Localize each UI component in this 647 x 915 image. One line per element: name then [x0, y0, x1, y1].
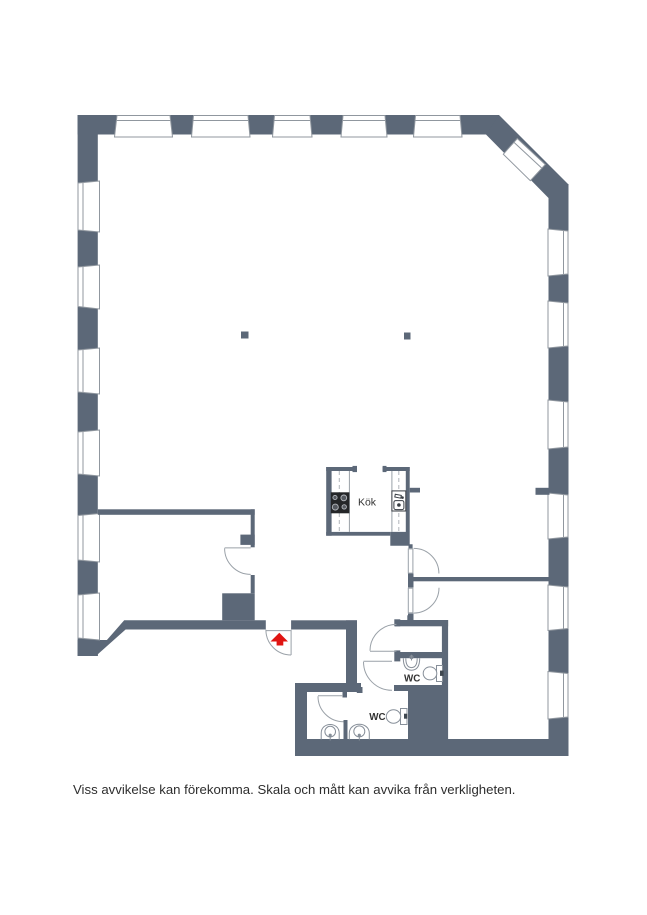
svg-text:WC: WC	[404, 674, 420, 685]
svg-text:Viss avvikelse kan förekomma.: Viss avvikelse kan förekomma. Skala och …	[73, 782, 515, 797]
svg-text:Kök: Kök	[358, 497, 377, 509]
svg-text:WC: WC	[369, 712, 385, 723]
